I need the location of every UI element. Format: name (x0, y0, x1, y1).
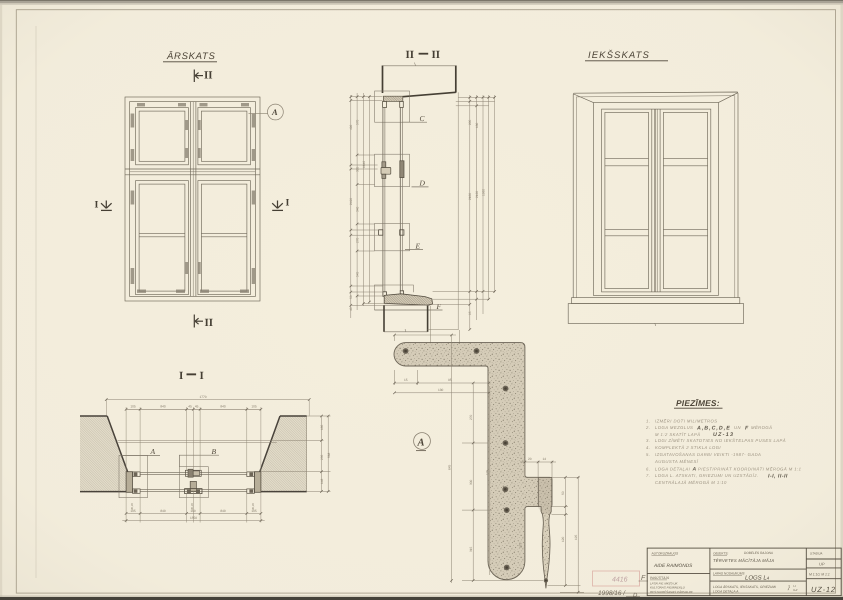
svg-text:14: 14 (543, 457, 547, 461)
svg-text:175: 175 (519, 542, 523, 548)
svg-text:50: 50 (349, 295, 353, 299)
svg-text:I-I, II-II: I-I, II-II (768, 474, 788, 480)
svg-text:50: 50 (561, 491, 565, 495)
svg-text:1640: 1640 (362, 161, 366, 168)
svg-text:LOGA L. ATSKATI, GRIEZUMI: LOGA L. ATSKATI, GRIEZUMI UN UZSTĀDĪJ. (655, 473, 758, 478)
svg-text:270: 270 (356, 237, 360, 243)
svg-text:7.: 7. (646, 473, 650, 478)
svg-text:LAPAS NOSAUKUMS: LAPAS NOSAUKUMS (713, 572, 745, 576)
svg-text:MĒROGĀ: MĒROGĀ (751, 425, 772, 430)
svg-text:IZMĒRI DOTI MILIMETROS: IZMĒRI DOTI MILIMETROS (655, 419, 717, 424)
svg-text:570: 570 (356, 119, 360, 125)
svg-text:ĀRSKATS: ĀRSKATS (166, 51, 216, 62)
svg-text:235: 235 (320, 454, 324, 460)
svg-text:840: 840 (220, 405, 226, 409)
svg-text:645: 645 (447, 464, 451, 470)
svg-text:15: 15 (404, 378, 408, 382)
svg-text:E: E (415, 241, 421, 250)
svg-text:A,B,C,D,E: A,B,C,D,E (696, 426, 731, 432)
svg-text:A: A (692, 467, 697, 473)
svg-text:3.: 3. (646, 438, 650, 443)
svg-text:340: 340 (356, 206, 360, 212)
svg-text:I: I (200, 370, 204, 382)
svg-text:40: 40 (349, 307, 353, 311)
svg-text:185: 185 (320, 424, 324, 430)
svg-text:545: 545 (356, 271, 360, 277)
svg-text:LOGI ZĪMĒTI SKATOTIES NO I: LOGI ZĪMĒTI SKATOTIES NO IEKŠTELPAS PUSE… (655, 438, 786, 443)
svg-text:105: 105 (251, 405, 257, 409)
svg-text:A: A (150, 447, 156, 456)
svg-text:1550: 1550 (190, 516, 197, 520)
svg-text:AIDE RAIMONDS: AIDE RAIMONDS (653, 563, 693, 569)
svg-text:M 1:2 SKATĪT LAPĀ: M 1:2 SKATĪT LAPĀ (655, 432, 701, 437)
svg-text:D: D (633, 592, 638, 599)
svg-text:1.: 1. (646, 419, 650, 424)
svg-text:840: 840 (160, 405, 166, 409)
svg-text:270: 270 (469, 414, 473, 420)
svg-text:}: } (787, 585, 790, 591)
svg-text:II: II (432, 49, 441, 61)
svg-text:180: 180 (475, 122, 479, 128)
svg-text:148: 148 (320, 478, 324, 484)
svg-text:DOBELES RAJONA: DOBELES RAJONA (744, 551, 773, 555)
svg-text:2180: 2180 (468, 193, 472, 200)
svg-text:105: 105 (130, 405, 136, 409)
svg-text:1980: 1980 (481, 189, 485, 196)
svg-text:120: 120 (561, 536, 565, 542)
svg-text:UZ-12: UZ-12 (811, 585, 836, 594)
svg-text:105: 105 (130, 509, 136, 513)
svg-text:2490: 2490 (349, 198, 353, 205)
svg-text:1770: 1770 (199, 395, 206, 399)
svg-text:160: 160 (190, 509, 196, 513)
svg-text:LOGA ĀRSKATS, IEKŠSKATS, GRIE: LOGA ĀRSKATS, IEKŠSKATS, GRIEZUMI (713, 585, 776, 589)
svg-text:D: D (419, 179, 426, 188)
svg-text:95: 95 (468, 311, 472, 315)
svg-text:TĒRVETES MĀCĪTĀJA MĀJA: TĒRVETES MĀCĪTĀJA MĀJA (713, 558, 774, 563)
svg-text:840: 840 (160, 509, 166, 513)
svg-text:UP: UP (819, 562, 825, 567)
svg-text:95: 95 (448, 378, 452, 382)
svg-text:AUTORUZRAUGS: AUTORUZRAUGS (651, 552, 680, 556)
svg-text:II-II: II-II (793, 588, 797, 592)
svg-text:RESTAURĒŠANAS PĀRVALDE: RESTAURĒŠANAS PĀRVALDE (650, 590, 694, 594)
svg-text:LOGA DETAĻA A: LOGA DETAĻA A (713, 590, 739, 594)
svg-text:CENTRĀLAJĀ MĒROGĀ M 1:10: CENTRĀLAJĀ MĒROGĀ M 1:10 (655, 480, 727, 485)
svg-text:840: 840 (220, 509, 226, 513)
svg-text:LOGA MEZGLUS: LOGA MEZGLUS (655, 425, 693, 430)
svg-text:2.: 2. (645, 425, 650, 430)
svg-text:45: 45 (188, 405, 192, 409)
svg-text:PIESTIPRINĀT KOORDINĀTI MĒRO: PIESTIPRINĀT KOORDINĀTI MĒROGĀ M 1:1 (698, 466, 801, 471)
svg-text:I: I (286, 198, 290, 209)
svg-text:205: 205 (468, 119, 472, 125)
svg-text:PIEZĪMES:: PIEZĪMES: (676, 398, 720, 408)
svg-text:175: 175 (485, 469, 489, 475)
svg-text:M 1:10; M 1:1: M 1:10; M 1:1 (809, 573, 830, 577)
svg-text:B: B (212, 447, 217, 456)
svg-text:5.: 5. (646, 452, 650, 457)
svg-text:4416: 4416 (612, 577, 628, 584)
svg-text:F: F (436, 302, 442, 311)
svg-text:4.: 4. (646, 445, 650, 450)
svg-text:I: I (95, 200, 99, 211)
svg-text:AUGUSTA MĒNESĪ: AUGUSTA MĒNESĪ (654, 459, 699, 464)
svg-text:1998/16 /: 1998/16 / (598, 590, 626, 597)
svg-text:568: 568 (327, 452, 331, 458)
svg-text:PASŪTĪTĀJS: PASŪTĪTĀJS (650, 576, 670, 580)
svg-text:45: 45 (195, 405, 199, 409)
svg-text:LOGS L4: LOGS L4 (745, 574, 770, 581)
svg-text:IEKŠSKATS: IEKŠSKATS (588, 49, 650, 61)
svg-text:OBJEKTS:: OBJEKTS: (713, 552, 729, 556)
svg-text:LOGA DETAĻAI: LOGA DETAĻAI (655, 466, 691, 471)
svg-text:II: II (205, 317, 214, 329)
svg-text:UN: UN (734, 425, 741, 430)
svg-text:105: 105 (251, 509, 257, 513)
svg-text:6.: 6. (646, 466, 650, 471)
svg-text:305: 305 (356, 166, 360, 172)
svg-text:195: 195 (574, 534, 578, 540)
svg-text:KOMPLEKTĀ 2 STIKLA LOGI: KOMPLEKTĀ 2 STIKLA LOGI (655, 445, 721, 450)
svg-text:130: 130 (438, 388, 444, 392)
svg-text:A: A (417, 437, 425, 448)
svg-text:2120: 2120 (475, 191, 479, 198)
svg-text:490: 490 (349, 124, 353, 130)
svg-text:II: II (406, 49, 415, 61)
svg-text:STADIJA: STADIJA (810, 552, 823, 556)
svg-text:I: I (179, 370, 183, 382)
svg-text:F: F (745, 426, 749, 432)
svg-text:315: 315 (469, 546, 473, 552)
svg-text:IZGATAVOŠANAS DARBI VEIKTI: IZGATAVOŠANAS DARBI VEIKTI -1987- GADA (655, 452, 761, 457)
svg-text:20: 20 (528, 457, 532, 461)
svg-text:II: II (204, 70, 213, 82)
svg-text:A: A (271, 107, 278, 117)
svg-text:300: 300 (469, 479, 473, 485)
